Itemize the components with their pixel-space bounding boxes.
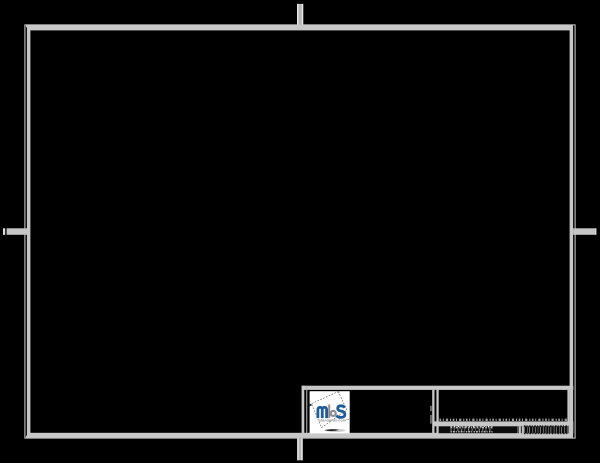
svg-text:standards·com™: standards·com™: [319, 418, 350, 422]
